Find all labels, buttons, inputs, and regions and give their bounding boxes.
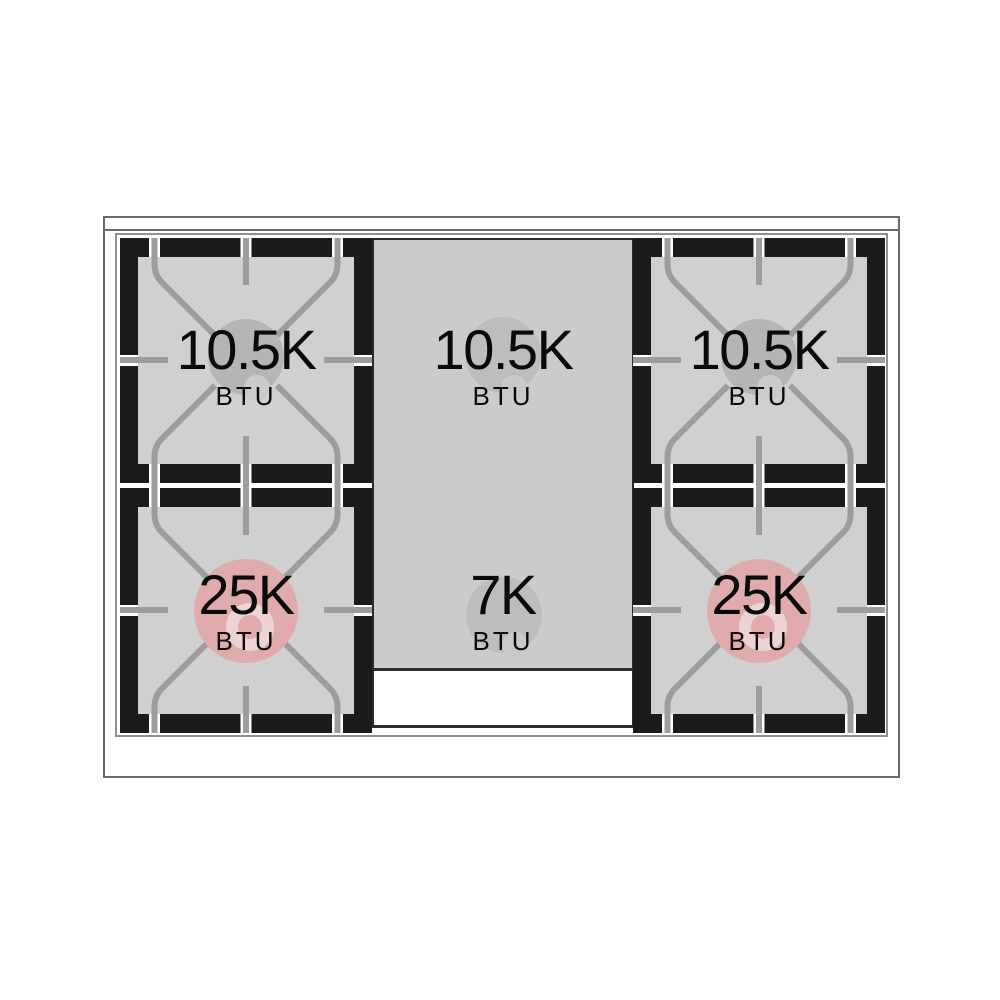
burner-grates-left [120, 238, 372, 733]
burner-label-top-left: 10.5K BTU [177, 322, 316, 409]
btu-value: 25K [711, 567, 806, 623]
btu-unit: BTU [690, 383, 829, 409]
center-lower-panel [372, 668, 634, 728]
burner-label-top-center: 10.5K BTU [434, 322, 573, 409]
btu-value: 10.5K [434, 322, 573, 378]
btu-value: 7K [470, 567, 536, 623]
cooktop-surface [115, 233, 888, 737]
btu-unit: BTU [470, 628, 536, 654]
cooktop-diagram: 10.5K BTU 10.5K BTU 10.5K BTU 25K BTU 7K… [0, 0, 1000, 1000]
btu-value: 25K [198, 567, 293, 623]
burner-label-top-right: 10.5K BTU [690, 322, 829, 409]
btu-unit: BTU [711, 628, 806, 654]
btu-unit: BTU [177, 383, 316, 409]
btu-unit: BTU [434, 383, 573, 409]
burner-label-bottom-center: 7K BTU [470, 567, 536, 654]
btu-value: 10.5K [177, 322, 316, 378]
burner-module-right [633, 238, 885, 733]
btu-value: 10.5K [690, 322, 829, 378]
back-trim-line [105, 229, 898, 231]
burner-grates-right [633, 238, 885, 733]
range-top-outline [103, 216, 900, 778]
btu-unit: BTU [198, 628, 293, 654]
burner-label-bottom-left: 25K BTU [198, 567, 293, 654]
burner-module-left [120, 238, 372, 733]
burner-label-bottom-right: 25K BTU [711, 567, 806, 654]
